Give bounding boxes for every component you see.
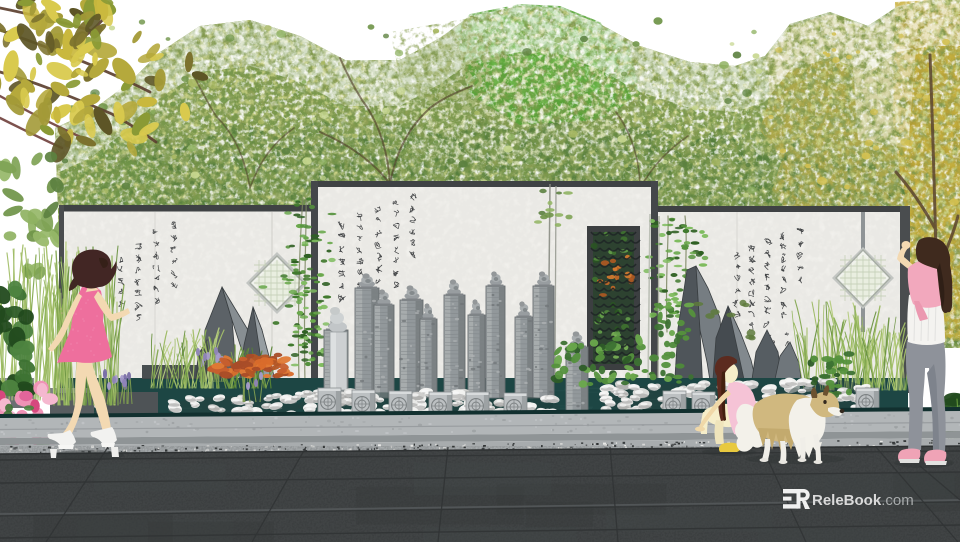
svg-text:ReleBook.com: ReleBook.com [812, 492, 914, 509]
